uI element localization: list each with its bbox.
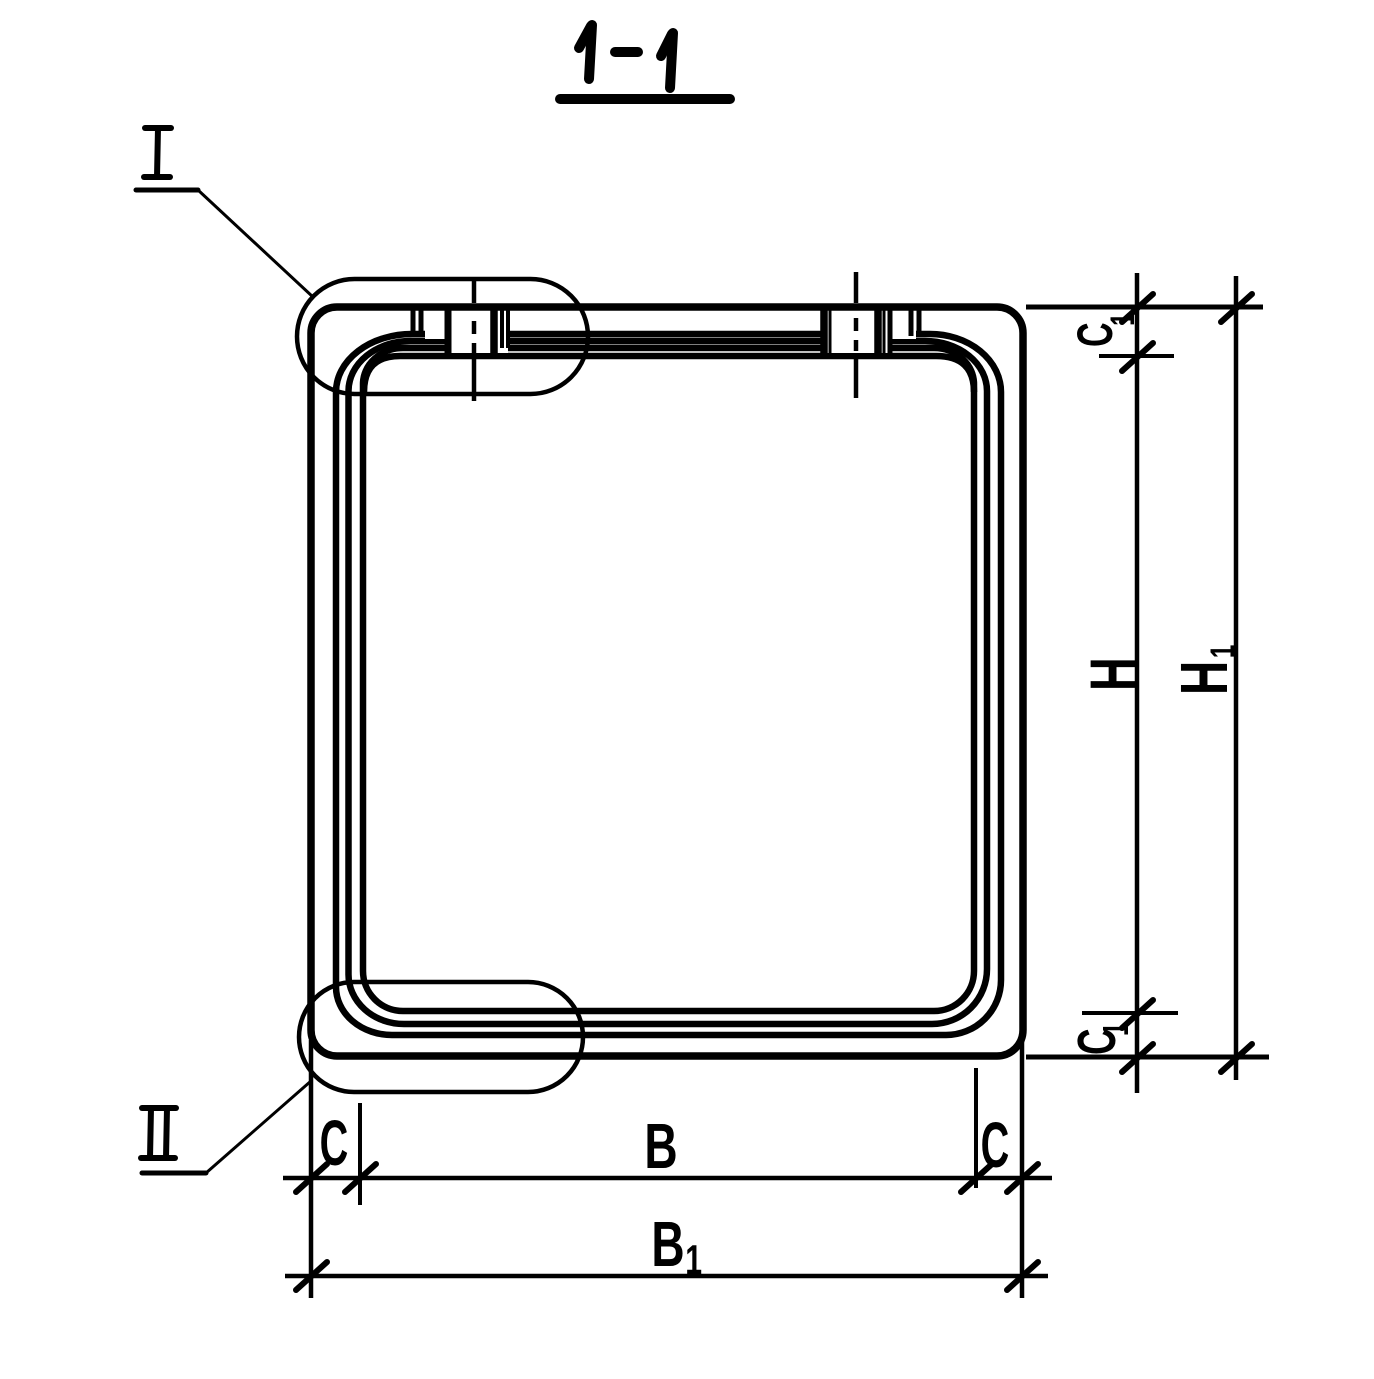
svg-text:1: 1 (1204, 645, 1242, 658)
svg-text:H: H (1077, 657, 1151, 691)
svg-text:C: C (981, 1111, 1010, 1182)
svg-text:1: 1 (1095, 1022, 1136, 1036)
svg-text:B: B (651, 1209, 684, 1280)
svg-text:B: B (644, 1111, 677, 1182)
svg-text:1: 1 (685, 1236, 702, 1283)
svg-text:H: H (1167, 661, 1242, 695)
svg-text:C: C (320, 1109, 349, 1180)
svg-text:1: 1 (1105, 313, 1142, 326)
